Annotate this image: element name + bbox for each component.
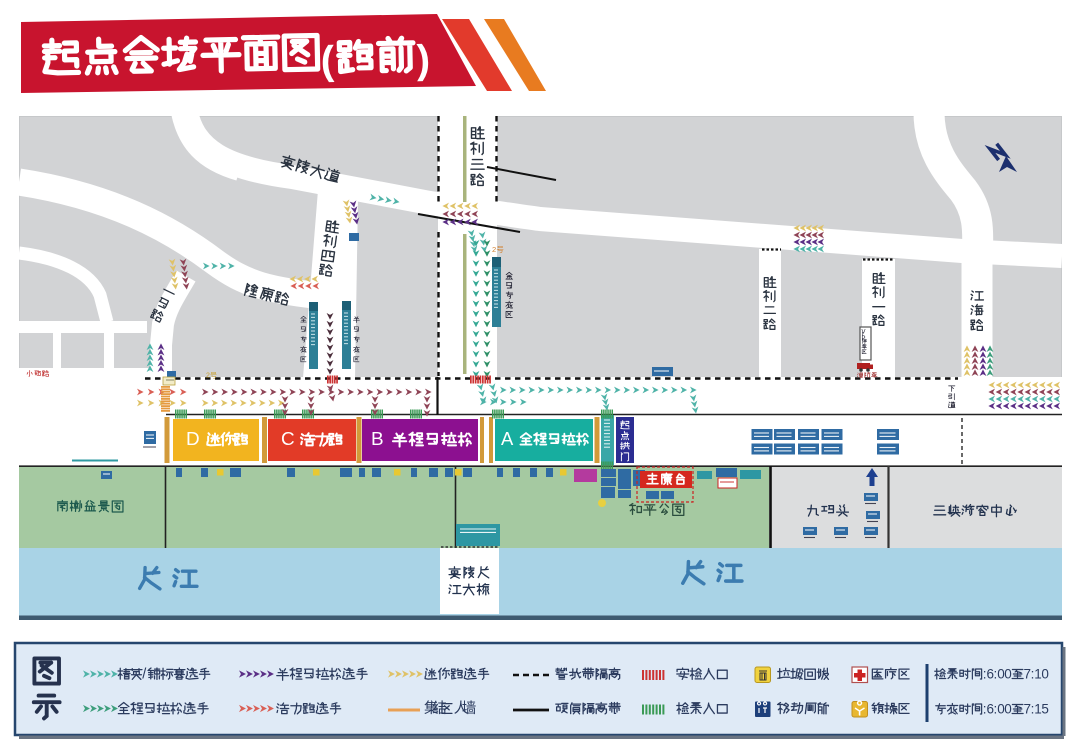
svg-text:2: 2 (492, 245, 496, 254)
svg-text:7: 7 (1024, 701, 1032, 716)
svg-text::: : (983, 701, 987, 716)
svg-text::: : (1031, 666, 1035, 681)
svg-text:1: 1 (1034, 701, 1042, 716)
svg-text::: : (994, 666, 998, 681)
svg-text:1: 1 (1034, 666, 1042, 681)
svg-text:5: 5 (1041, 701, 1049, 716)
svg-text:2: 2 (206, 372, 210, 379)
svg-text:C: C (281, 429, 295, 450)
svg-text::: : (983, 666, 987, 681)
svg-text:0: 0 (1004, 701, 1012, 716)
svg-text:结: 结 (432, 700, 447, 717)
svg-text:6: 6 (987, 701, 995, 716)
svg-text:A: A (501, 428, 514, 449)
svg-text:号: 号 (496, 245, 504, 254)
svg-text:号: 号 (210, 371, 217, 379)
svg-text:0: 0 (997, 666, 1005, 681)
svg-text:0: 0 (1004, 666, 1012, 681)
svg-text:0: 0 (1041, 666, 1049, 681)
svg-text::: : (1031, 701, 1035, 716)
svg-text:D: D (186, 429, 200, 450)
svg-text:0: 0 (997, 701, 1005, 716)
svg-text:墙: 墙 (462, 700, 477, 717)
svg-text:(: ( (320, 39, 335, 83)
svg-text:6: 6 (987, 666, 995, 681)
svg-text:): ) (416, 38, 430, 82)
svg-text:B: B (371, 429, 384, 450)
svg-text:7: 7 (1024, 666, 1032, 681)
svg-text::: : (994, 701, 998, 716)
